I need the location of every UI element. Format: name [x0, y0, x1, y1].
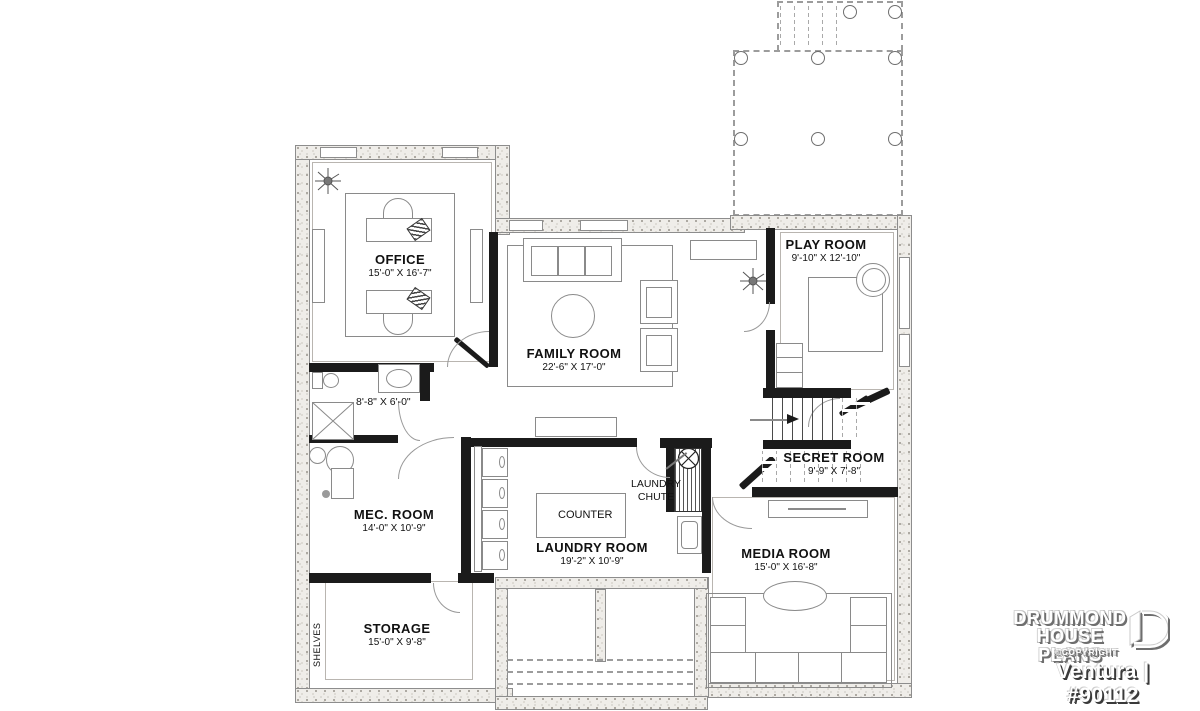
deck-post [888, 132, 902, 146]
room-dims: 14'-0" X 10'-9" [354, 523, 434, 535]
wall-stairs-bottom [763, 440, 851, 449]
floor-drain [322, 490, 330, 498]
wall-bath-right [420, 371, 430, 401]
room-name: MEC. ROOM [354, 508, 434, 523]
sectional-seam [755, 653, 756, 682]
sofa-cushion [558, 246, 585, 276]
wall-storage-top [309, 573, 431, 583]
room-label-play: PLAY ROOM 9'-10" X 12'-10" [786, 238, 867, 264]
room-dims: 15'-0" X 9'-8" [364, 637, 431, 649]
window [320, 147, 357, 158]
stairs-treads-dashed [842, 398, 870, 440]
round-chair-cushion [862, 268, 886, 292]
room-label-secret: SECRET ROOM 9'-9" X 7'-8" [783, 451, 884, 477]
room-label-mec: MEC. ROOM 14'-0" X 10'-9" [354, 508, 434, 534]
room-label-storage: STORAGE 15'-0" X 9'-8" [364, 622, 431, 648]
deck-stairs-treads [780, 3, 846, 48]
deck-post [843, 5, 857, 19]
media-console-line [788, 508, 846, 510]
window [899, 334, 910, 367]
footing-dashed-line [507, 683, 693, 685]
console-table [690, 240, 757, 260]
door-arc-play [744, 302, 770, 332]
appliance-handle [499, 456, 505, 468]
exterior-wall-porch-bottom [495, 696, 708, 710]
round-table [551, 294, 595, 338]
room-name: STORAGE [364, 622, 431, 637]
armchair-cushion [646, 287, 672, 318]
toilet-tank [312, 372, 323, 389]
laundry-side-panel [474, 446, 482, 572]
brand-copyright: ©COPYRIGHT [1055, 648, 1118, 657]
sectional-seam [798, 653, 799, 682]
deck-post [734, 51, 748, 65]
room-dims: 9'-9" X 7'-8" [783, 466, 884, 478]
room-name: OFFICE [368, 253, 431, 268]
wall-laundry-media [702, 448, 711, 573]
window [580, 220, 628, 231]
laundry-chute-label-line2: CHUTE [630, 491, 682, 503]
office-cabinet [470, 229, 483, 303]
deck-post [888, 5, 902, 19]
office-chair [383, 198, 413, 220]
deck-post [811, 132, 825, 146]
stairs-direction-line [750, 419, 788, 421]
exterior-wall-porch-top [495, 577, 708, 589]
exterior-wall-left [295, 145, 310, 703]
wall-office-family [489, 232, 498, 367]
appliance-handle [499, 487, 505, 499]
door-arc-laundry [636, 447, 670, 478]
stairs-direction-arrow [787, 414, 799, 424]
deck-post [734, 132, 748, 146]
room-name: LAUNDRY ROOM [536, 541, 648, 556]
room-dims: 9'-10" X 12'-10" [786, 253, 867, 265]
dresser-drawer-line [777, 372, 802, 373]
floor-plan: OFFICE 15'-0" X 16'-7" FAMILY ROOM 22'-6… [0, 0, 1200, 711]
wall-media-top [752, 487, 898, 497]
oval-table [763, 581, 827, 611]
room-name: SECRET ROOM [783, 451, 884, 466]
exterior-wall-storage-bottom [295, 688, 513, 703]
room-dims: 15'-0" X 16'-7" [368, 268, 431, 280]
furnace [331, 468, 354, 499]
room-label-laundry: LAUNDRY ROOM 19'-2" X 10'-9" [536, 541, 648, 567]
window [442, 147, 478, 158]
toilet-bowl [323, 373, 339, 388]
sectional-seam [841, 653, 842, 682]
dresser [776, 343, 803, 388]
room-label-family: FAMILY ROOM 22'-6" X 17'-0" [527, 347, 622, 373]
wall-play-left-lower [766, 330, 775, 398]
wall-storage-top-right [458, 573, 494, 583]
sofa-cushion [531, 246, 558, 276]
office-cabinet [312, 229, 325, 303]
sofa-cushion [585, 246, 612, 276]
room-name: MEDIA ROOM [741, 547, 830, 562]
dresser-drawer-line [777, 357, 802, 358]
footing-dashed-line [507, 659, 693, 661]
window [509, 220, 543, 231]
laundry-chute-icon [677, 447, 700, 470]
wall-mec-laundry [461, 437, 471, 578]
shower-icon [312, 402, 354, 440]
appliance-handle [499, 518, 505, 530]
counter-label: COUNTER [558, 509, 612, 522]
sectional-seam [711, 625, 745, 626]
drummond-logo-icon [1120, 605, 1168, 651]
laundry-chute-label-line1: LAUNDRY [630, 478, 682, 490]
room-name: PLAY ROOM [786, 238, 867, 253]
plant-icon [738, 266, 768, 296]
mec-equipment [309, 447, 326, 464]
sectional-seam [851, 625, 886, 626]
exterior-wall-porch-divider [595, 589, 606, 662]
exterior-wall-play-top [730, 215, 912, 230]
appliance-handle [499, 549, 505, 561]
room-dims: 15'-0" X 16'-8" [741, 562, 830, 574]
room-dims: 22'-6" X 17'-0" [527, 362, 622, 374]
wall-laundry-top [461, 438, 637, 447]
plant-icon [313, 166, 343, 196]
room-label-office: OFFICE 15'-0" X 16'-7" [368, 253, 431, 279]
footing-dashed-line [507, 671, 693, 673]
deck-post [888, 51, 902, 65]
bath-dims: 8'-8" X 6'-0" [356, 396, 411, 408]
laundry-sink-basin [681, 521, 698, 549]
plan-id-label: Ventura | #90112 [1028, 660, 1178, 708]
door-arc-mec [398, 437, 454, 479]
shelves-label: SHELVES [312, 623, 322, 667]
room-label-media: MEDIA ROOM 15'-0" X 16'-8" [741, 547, 830, 573]
wall-stairs-top [763, 388, 851, 398]
room-name: FAMILY ROOM [527, 347, 622, 362]
sink-basin [386, 369, 412, 388]
window [899, 257, 910, 329]
console-table [535, 417, 617, 437]
armchair-cushion [646, 335, 672, 366]
deck-post [811, 51, 825, 65]
room-dims: 19'-2" X 10'-9" [536, 556, 648, 568]
